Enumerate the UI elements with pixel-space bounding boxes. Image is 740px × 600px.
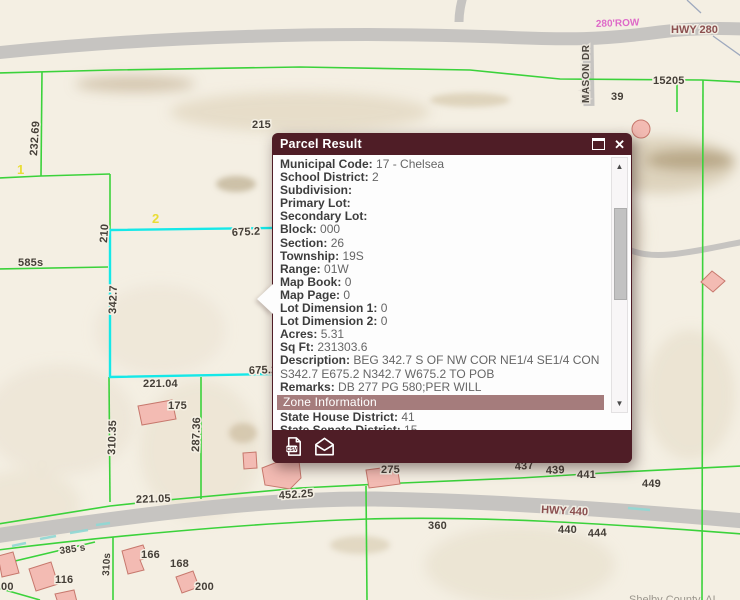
- map-label: 15205: [653, 75, 685, 87]
- close-icon[interactable]: ✕: [614, 138, 625, 151]
- road-branch-north: [459, 0, 463, 22]
- road-label-hwy-440: HWY 440: [541, 504, 588, 518]
- road-label-hwy-280: HWY 280: [671, 24, 718, 36]
- parcel-map-app: 232.69 215 210 585s 675.2 342.7 675.2 22…: [0, 0, 740, 600]
- map-label: 310.35: [106, 420, 119, 455]
- building: [243, 452, 257, 469]
- map-label: 449: [642, 478, 661, 490]
- map-attribution: Shelby County, AL: [629, 594, 719, 600]
- popup-content: Municipal Code: 17 - Chelsea School Dist…: [273, 155, 631, 430]
- map-label: 168: [170, 558, 189, 570]
- map-label: 441: [577, 469, 596, 481]
- field-description: Description: BEG 342.7 S OF NW COR NE1/4…: [280, 354, 604, 380]
- map-label: 310s: [101, 552, 113, 576]
- yellow-lot-label: 1: [17, 162, 24, 177]
- popup-titlebar[interactable]: Parcel Result ✕: [272, 133, 632, 155]
- map-label: 675.2: [232, 226, 261, 239]
- building: [632, 120, 650, 138]
- map-label: 200: [195, 581, 214, 593]
- map-label: 221.04: [143, 378, 179, 390]
- map-label: 116: [55, 574, 73, 586]
- map-label: 440: [558, 524, 577, 536]
- map-label: 166: [141, 549, 160, 561]
- scroll-down-icon[interactable]: ▼: [612, 397, 627, 410]
- map-label: 585s: [18, 257, 43, 269]
- map-label: 287.36: [190, 417, 203, 452]
- road-label-mason-dr: MASON DR: [581, 44, 592, 103]
- field-remarks: Remarks: DB 277 PG 580;PER WILL: [280, 381, 604, 394]
- map-label: 215: [252, 119, 271, 131]
- yellow-lot-label: 2: [152, 211, 159, 226]
- map-label: 00: [1, 581, 14, 593]
- map-label: 439: [546, 464, 566, 477]
- map-label: 342.7: [107, 285, 120, 314]
- zone-information-section-header: Zone Information: [277, 395, 604, 410]
- map-label: 210: [98, 223, 111, 243]
- scrollbar-thumb[interactable]: [614, 208, 627, 300]
- map-label: 275: [381, 464, 400, 476]
- export-csv-icon[interactable]: CSV: [282, 435, 305, 458]
- popup-title: Parcel Result: [272, 137, 592, 151]
- maximize-icon[interactable]: [592, 138, 605, 150]
- map-label: 39: [611, 91, 624, 103]
- scroll-up-icon[interactable]: ▲: [612, 160, 627, 173]
- popup-footer: CSV: [272, 430, 632, 463]
- map-label: 232.69: [28, 121, 42, 157]
- map-label: 444: [588, 527, 608, 540]
- popup-scrollbar[interactable]: ▲ ▼: [611, 157, 628, 413]
- popup-callout-pointer: [257, 284, 273, 314]
- map-label: 360: [428, 520, 447, 532]
- map-label: 221.05: [136, 493, 171, 506]
- row-width-label: 280'ROW: [596, 17, 640, 30]
- parcel-result-popup: Parcel Result ✕ Municipal Code: 17 - Che…: [272, 133, 632, 463]
- map-label: 175: [168, 400, 187, 412]
- field-block: Block: 000: [280, 223, 604, 236]
- email-results-icon[interactable]: [312, 435, 337, 458]
- map-label: 452.25: [278, 488, 314, 502]
- field-state-senate-district: State Senate District: 15: [280, 424, 604, 430]
- svg-text:CSV: CSV: [286, 447, 297, 453]
